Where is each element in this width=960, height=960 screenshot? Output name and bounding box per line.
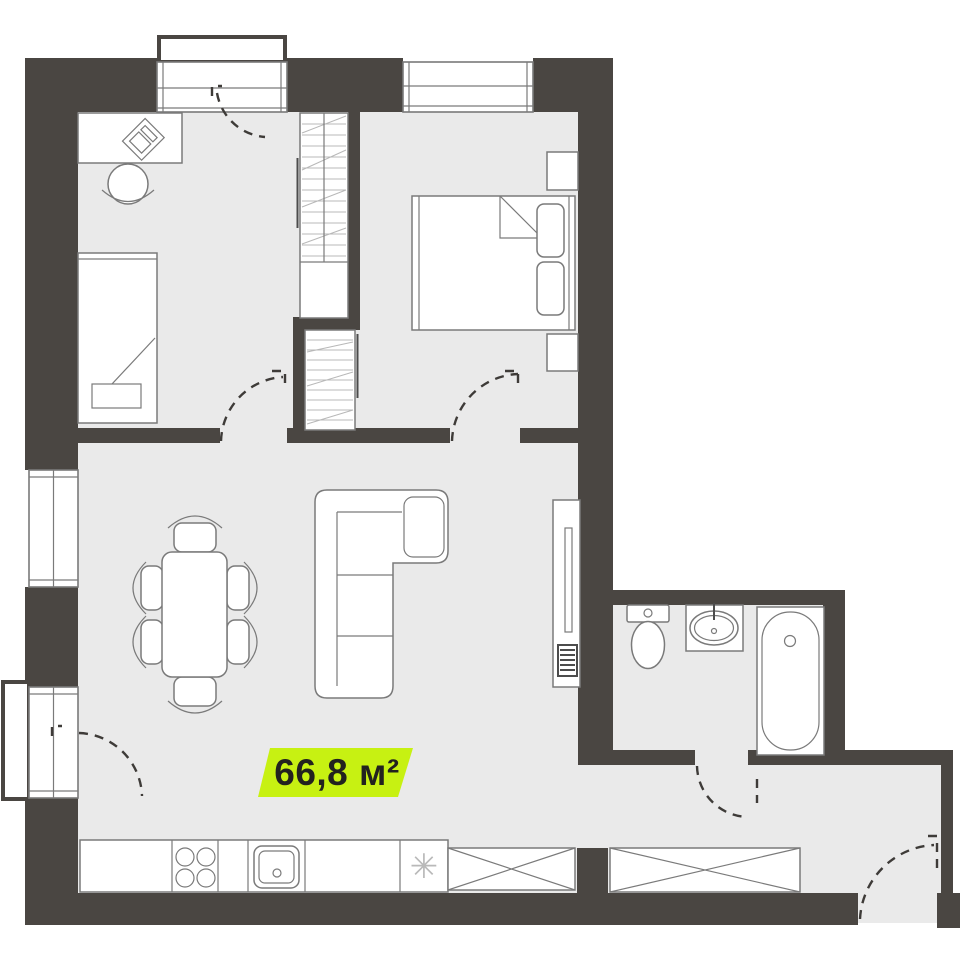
balcony-door-window [29, 687, 78, 798]
kitchen: ✳ [80, 840, 575, 892]
area-badge: 66,8 м² [258, 748, 413, 797]
double-bed [412, 196, 575, 330]
hallway-wardrobe [610, 848, 800, 892]
wall-top-middle [287, 58, 403, 112]
pillow [537, 262, 564, 315]
chair [227, 620, 249, 664]
wall-right-upper [578, 58, 613, 765]
single-bed [78, 253, 157, 423]
wall-office-bottom [72, 428, 220, 443]
wall-bottom [25, 893, 858, 925]
wall-between-rooms-upper [348, 110, 360, 320]
wall-between-rooms-lower [293, 330, 305, 430]
dining-table [162, 552, 227, 677]
wall-bathroom-top [613, 590, 845, 605]
nightstand-bottom [547, 334, 578, 371]
office-closet [298, 113, 349, 318]
chair [141, 566, 163, 610]
bathtub [757, 607, 824, 755]
wall-right-lower [941, 765, 953, 893]
wall-bedroom-bottom-right [520, 428, 580, 443]
wall-left-upper [25, 58, 78, 470]
bathroom-sink [686, 603, 743, 651]
kitchen-cabinet [448, 848, 575, 890]
chair [227, 566, 249, 610]
window-left-upper [29, 470, 78, 587]
appliance-marker-icon: ✳ [410, 847, 439, 887]
wall-between-rooms-jog [293, 317, 360, 330]
balcony-exterior-box [3, 682, 29, 799]
chair [174, 523, 216, 552]
wall-bathroom-bottom-left [600, 750, 695, 765]
bedroom-closet [305, 330, 358, 430]
window-exterior-ledge [159, 37, 285, 62]
wall-bathroom-right [823, 590, 845, 753]
window-bedroom-top [403, 62, 533, 112]
tv-unit [553, 500, 580, 687]
pillow [537, 204, 564, 257]
nightstand-top [547, 152, 578, 190]
chair [141, 620, 163, 664]
wall-left-lower [25, 798, 78, 893]
floor-plan-drawing: ✳ 66,8 м² [0, 0, 960, 960]
kitchen-sink [254, 846, 299, 888]
chair [174, 677, 216, 706]
desk [78, 113, 182, 163]
wall-bottom-right-corner [937, 893, 960, 928]
area-badge-text: 66,8 м² [274, 752, 399, 793]
floor-plan-page: ✳ 66,8 м² [0, 0, 960, 960]
wall-stub-kitchen-hall [577, 848, 608, 893]
wall-left-middle [25, 587, 78, 687]
